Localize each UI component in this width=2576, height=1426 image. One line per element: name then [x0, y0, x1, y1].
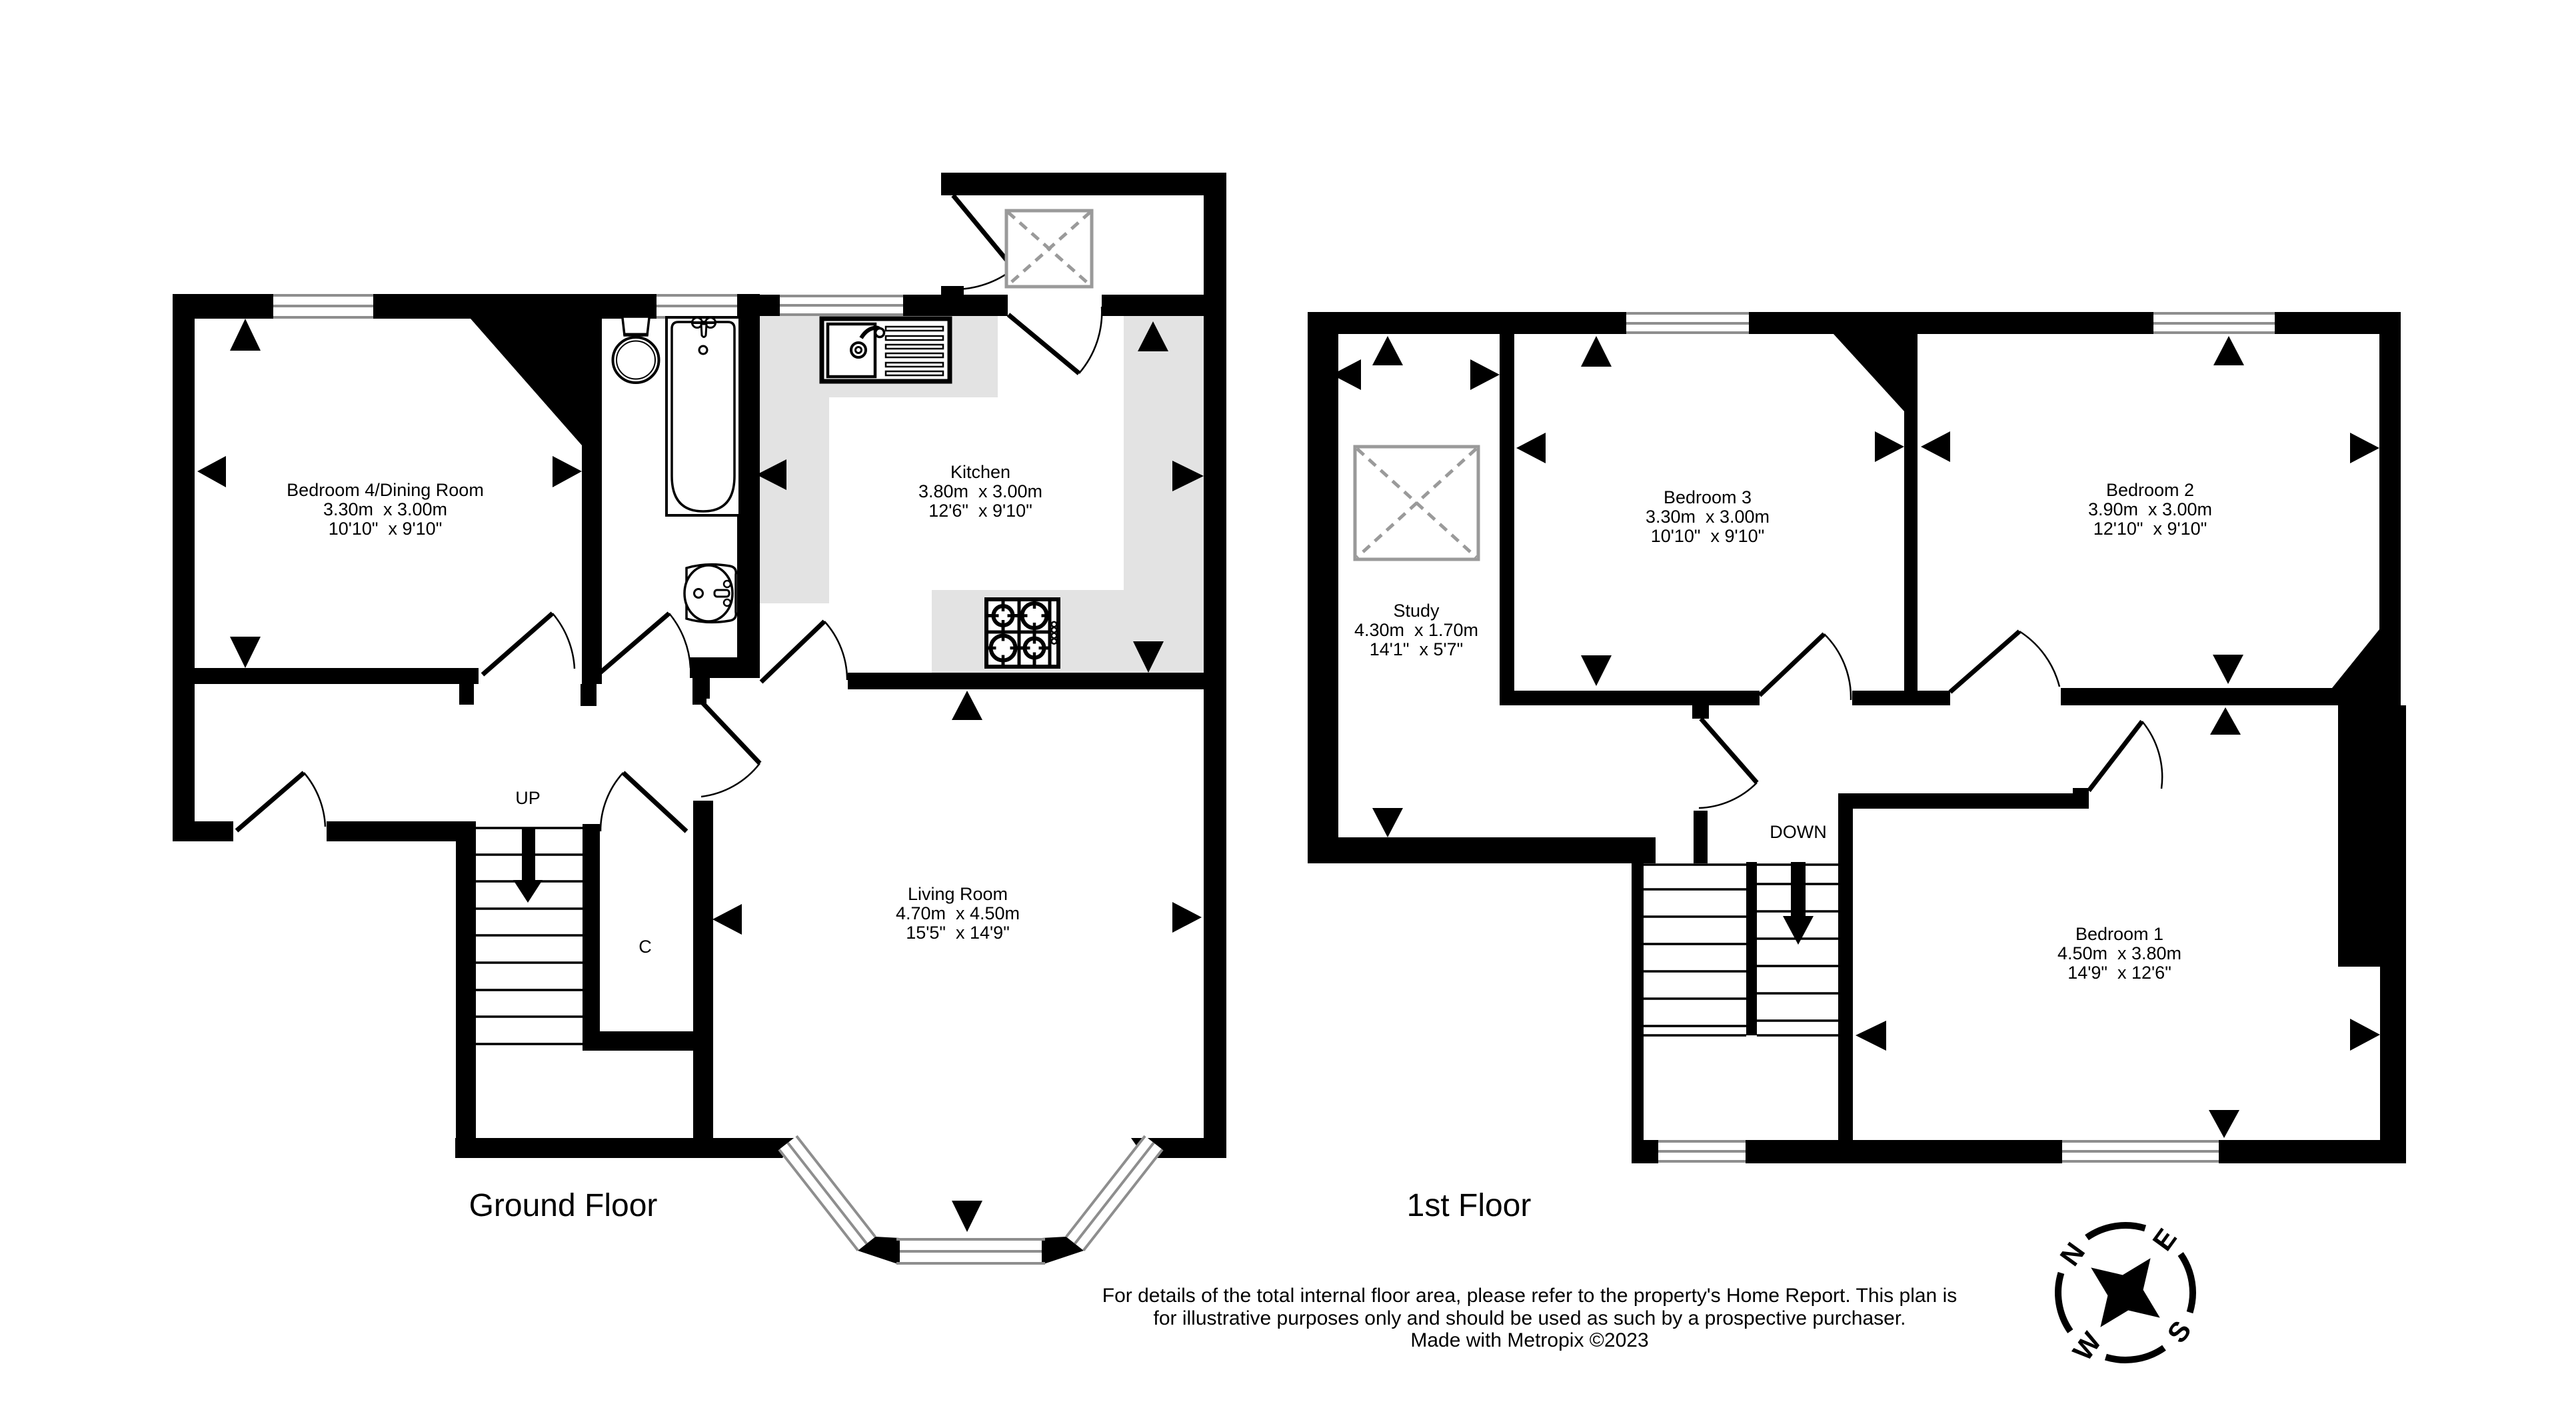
svg-text:DOWN: DOWN: [1770, 822, 1826, 842]
svg-text:3.80m x 3.00m: 3.80m x 3.00m: [918, 481, 1042, 501]
svg-text:14'1" x 5'7": 14'1" x 5'7": [1370, 639, 1464, 659]
svg-text:1st Floor: 1st Floor: [1407, 1188, 1532, 1223]
svg-text:Kitchen: Kitchen: [950, 462, 1010, 482]
svg-text:10'10" x 9'10": 10'10" x 9'10": [329, 519, 443, 539]
svg-text:Bedroom 3: Bedroom 3: [1664, 487, 1752, 507]
svg-text:Living Room: Living Room: [908, 884, 1008, 904]
svg-text:C: C: [639, 937, 652, 957]
svg-text:10'10" x 9'10": 10'10" x 9'10": [1651, 526, 1765, 546]
svg-text:3.30m x 3.00m: 3.30m x 3.00m: [1646, 507, 1770, 527]
svg-text:Made with Metropix ©2023: Made with Metropix ©2023: [1410, 1329, 1648, 1351]
svg-text:14'9" x 12'6": 14'9" x 12'6": [2067, 963, 2171, 983]
svg-text:4.30m x 1.70m: 4.30m x 1.70m: [1354, 620, 1478, 640]
svg-text:4.50m x 3.80m: 4.50m x 3.80m: [2057, 943, 2181, 963]
svg-text:12'6" x 9'10": 12'6" x 9'10": [928, 501, 1032, 521]
svg-text:3.90m x 3.00m: 3.90m x 3.00m: [2088, 499, 2212, 519]
svg-text:Bedroom 2: Bedroom 2: [2106, 480, 2194, 500]
svg-text:UP: UP: [515, 788, 541, 808]
svg-text:Bedroom 4/Dining Room: Bedroom 4/Dining Room: [287, 480, 484, 500]
svg-text:3.30m x 3.00m: 3.30m x 3.00m: [323, 499, 447, 519]
svg-text:Study: Study: [1393, 601, 1440, 621]
svg-text:4.70m x 4.50m: 4.70m x 4.50m: [896, 903, 1020, 923]
svg-text:15'5" x 14'9": 15'5" x 14'9": [906, 923, 1010, 943]
svg-text:12'10" x 9'10": 12'10" x 9'10": [2093, 519, 2207, 539]
svg-text:For details of the total inter: For details of the total internal floor …: [1102, 1285, 1957, 1307]
svg-text:Bedroom 1: Bedroom 1: [2075, 924, 2163, 944]
svg-text:Ground Floor: Ground Floor: [469, 1188, 658, 1223]
svg-text:for illustrative purposes only: for illustrative purposes only and shoul…: [1154, 1307, 1906, 1329]
